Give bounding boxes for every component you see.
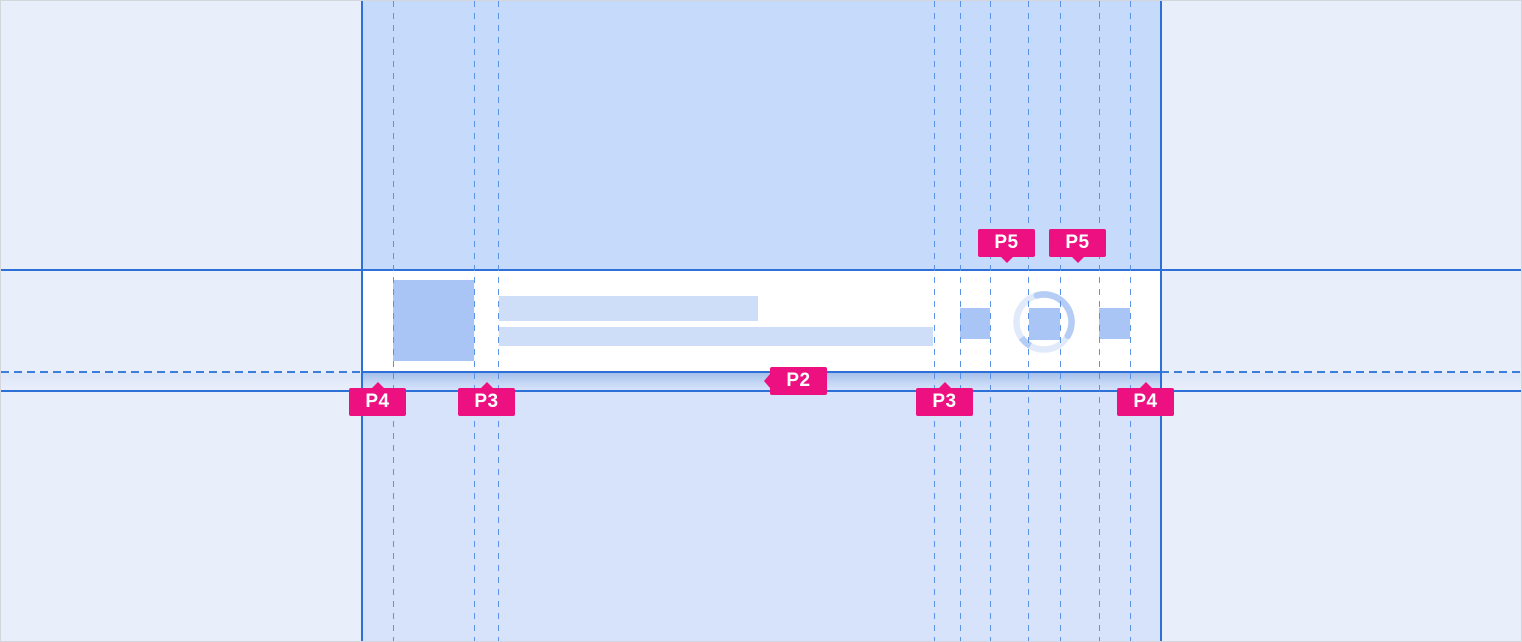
arrow-up-icon [939,382,951,388]
arrow-down-icon [1072,257,1084,263]
guide-action2-left [1028,1,1029,641]
row-bottom-guideline [1,390,1521,392]
padding-label-text: P4 [365,391,389,412]
padding-label-p5-right: P5 [1049,229,1106,257]
padding-label-text: P5 [994,232,1018,253]
padding-label-text: P2 [786,370,810,391]
guide-text-end [934,1,935,641]
guide-action1-right [990,1,991,641]
spec-redline-canvas: P5 P5 P2 P4 P3 P3 P4 [0,0,1522,642]
guide-action3-right [1130,1,1131,641]
guide-action3-left [1099,1,1100,641]
guide-avatar-right [474,1,475,641]
arrow-up-icon [372,382,384,388]
arrow-up-icon [481,382,493,388]
arrow-up-icon [1140,382,1152,388]
guide-lines-layer [1,1,1521,641]
row-baseline-dashed-left [1,371,362,373]
padding-label-text: P5 [1065,232,1089,253]
padding-label-p5-left: P5 [978,229,1035,257]
row-top-guideline [1,269,1521,271]
arrow-down-icon [1001,257,1013,263]
padding-label-text: P3 [932,391,956,412]
padding-label-p4-right: P4 [1117,388,1174,416]
guide-action1-left [960,1,961,641]
padding-label-p2: P2 [770,367,827,395]
guide-avatar-left [393,1,394,641]
column-border-right [1160,1,1162,641]
guide-text-start [498,1,499,641]
padding-label-p3-right: P3 [916,388,973,416]
row-baseline-dashed-right [1161,371,1521,373]
guide-action2-right [1060,1,1061,641]
column-border-left [361,1,363,641]
card-bottom-edge-line [362,371,1161,373]
padding-label-text: P3 [474,391,498,412]
arrow-left-icon [764,374,770,388]
padding-label-text: P4 [1133,391,1157,412]
padding-label-p3-left: P3 [458,388,515,416]
padding-label-p4-left: P4 [349,388,406,416]
